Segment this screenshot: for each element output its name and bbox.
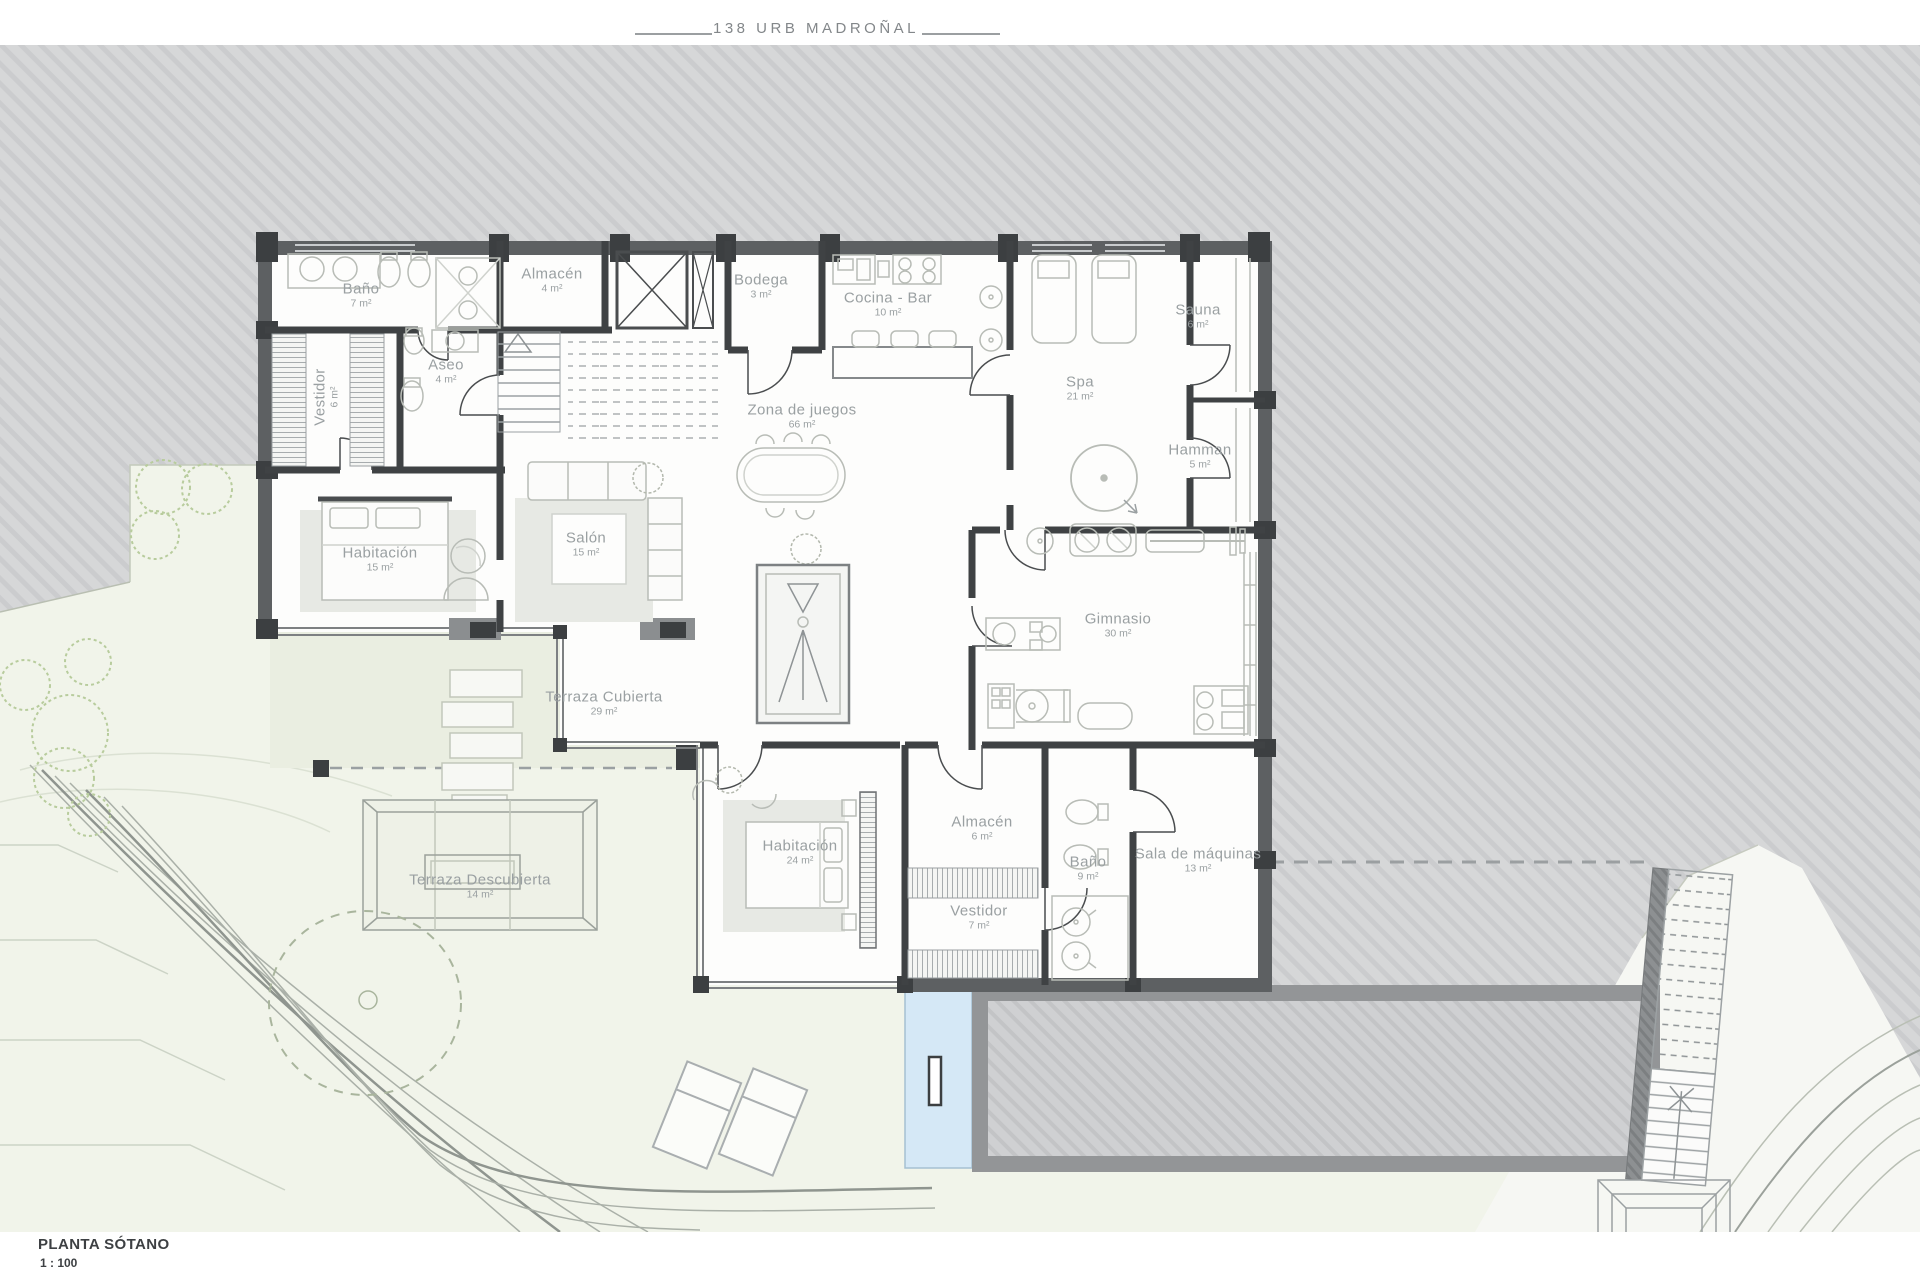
title-rule-right — [922, 33, 1000, 35]
plan-scale: 1 : 100 — [40, 1256, 77, 1270]
pool — [905, 990, 972, 1168]
floorplan-sheet: 138 URB MADROÑAL Baño7 m²Vestidor6 m²Ase… — [0, 0, 1920, 1280]
uncovered-terrace-pergola — [363, 800, 597, 930]
floor-plan-drawing — [0, 0, 1920, 1280]
title-rule-left — [635, 33, 712, 35]
sheet-bottom-margin — [0, 1232, 1920, 1280]
retaining-block — [972, 985, 1660, 1172]
interior-stair — [498, 332, 718, 445]
plan-name: PLANTA SÓTANO — [38, 1236, 170, 1253]
sheet-top-margin — [0, 0, 1920, 45]
sheet-title: 138 URB MADROÑAL — [713, 20, 919, 37]
pool-ladder — [929, 1057, 941, 1105]
